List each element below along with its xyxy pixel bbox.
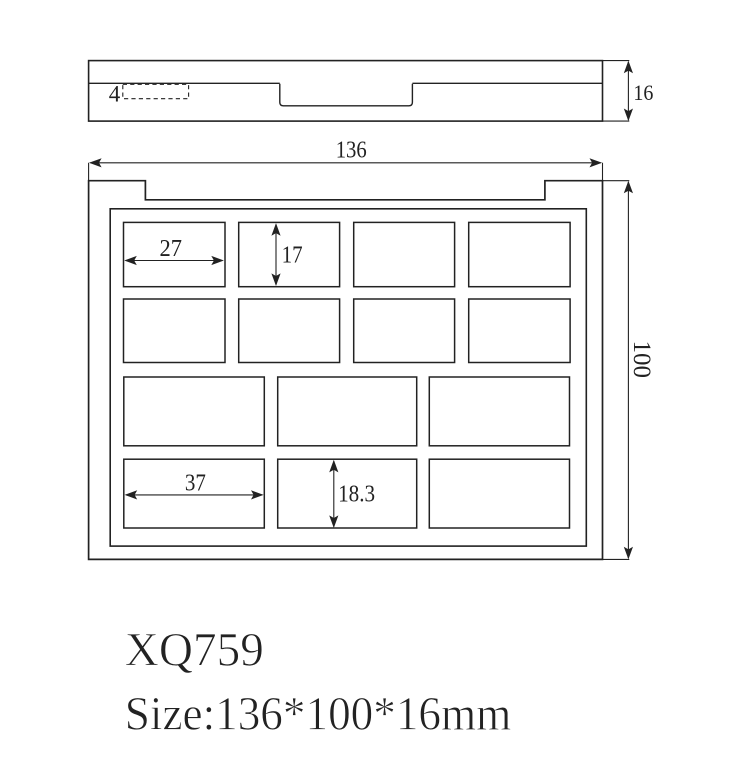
svg-text:16: 16 — [633, 80, 653, 105]
svg-text:27: 27 — [160, 236, 183, 262]
svg-text:136: 136 — [336, 138, 367, 164]
svg-text:Size:136*100*16mm: Size:136*100*16mm — [125, 688, 512, 741]
svg-text:17: 17 — [282, 243, 303, 269]
svg-text:18.3: 18.3 — [338, 481, 375, 507]
svg-text:XQ759: XQ759 — [125, 624, 264, 677]
svg-text:4: 4 — [109, 81, 121, 106]
svg-text:37: 37 — [185, 470, 206, 496]
svg-text:100: 100 — [628, 340, 655, 378]
